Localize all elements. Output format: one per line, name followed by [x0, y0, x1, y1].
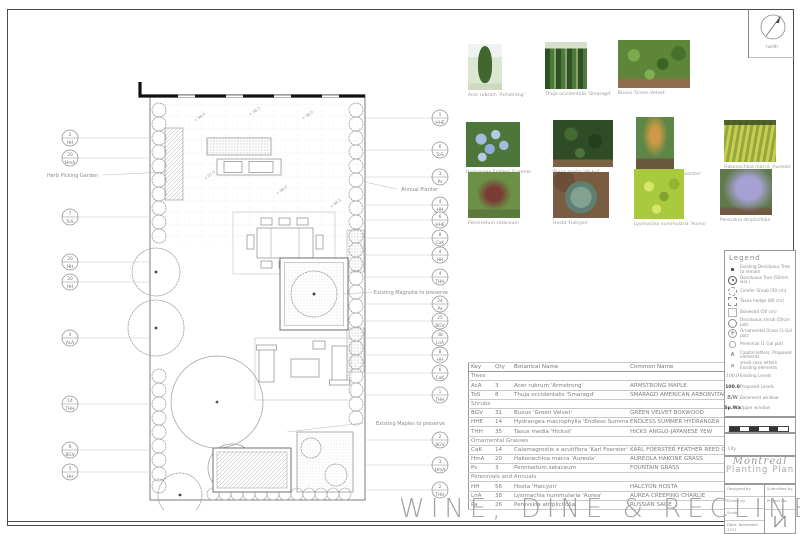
keynote-right: 4HH: [365, 197, 448, 213]
herb-garden-bed: [165, 128, 183, 200]
svg-text:HH: HH: [67, 140, 73, 146]
svg-text:3: 3: [439, 459, 442, 465]
svg-text:ToS: ToS: [435, 152, 444, 158]
taxus-hedge-icon: [728, 297, 737, 306]
legend-item: ACapital letters: Proposed elements: [728, 351, 793, 360]
svg-text:Ps: Ps: [438, 179, 444, 185]
magnolia-planter: [280, 258, 348, 330]
lowercase-letter-symbol: a: [728, 362, 737, 371]
scale-bar: [729, 426, 789, 432]
table-row: HH56Hosta 'Halcyon'HALCYON HOSTA: [469, 482, 725, 491]
legend-item: Boxwood (50 cm): [728, 308, 793, 317]
annual-planter-bed: [213, 448, 291, 492]
plant-photo-image: [553, 120, 613, 167]
right-bed-lower: [347, 328, 364, 372]
scale-cell: Scale: [724, 417, 796, 433]
plant-photo-image: [634, 169, 684, 219]
legend-item: B/WBasement window: [728, 393, 793, 402]
table-header-row: Key Qty Botanical Name Common Name: [469, 363, 725, 372]
plant-photo: Hakonechloa macra 'Aureola': [724, 120, 776, 170]
north-arrow-cell: north: [748, 9, 795, 58]
svg-text:AcA: AcA: [66, 340, 74, 346]
keynote-left: 20HmA: [62, 150, 150, 166]
basement-window-symbol: B/W: [728, 393, 737, 402]
plant-photo: Lysimachia nummularia 'Aurea': [634, 169, 684, 227]
legend-item: Deciduous Tree (50mm w.b.): [728, 276, 793, 285]
keynote-right: 1HHE: [365, 110, 448, 126]
svg-text:LnA: LnA: [436, 340, 444, 346]
right-bed-upper: [347, 230, 364, 272]
legend-title: Legend: [729, 254, 793, 262]
title-block-column: Legend Existing Deciduous Tree to remain…: [724, 250, 796, 534]
svg-text:6: 6: [69, 444, 72, 450]
plant-photo-image: [468, 172, 520, 218]
upper-window-symbol: Sp.Wa: [728, 404, 737, 413]
table-row: ToS8Thuja occidentalis 'Smaragd'SMARAGD …: [469, 390, 725, 399]
svg-text:HHE: HHE: [435, 222, 444, 228]
photo-caption: Acer rubrum 'Armstrong': [468, 93, 502, 98]
keynote-left: 2HH: [62, 130, 150, 146]
section-row: Shrubs: [469, 399, 725, 408]
svg-text:4: 4: [439, 199, 442, 205]
keynote-right: 8HH: [365, 347, 448, 363]
svg-text:24: 24: [437, 298, 443, 304]
boxwood-icon: [728, 308, 737, 317]
section-row: Trees: [469, 372, 725, 381]
legend-item: Conifer Shrub (50 cm): [728, 287, 793, 296]
perennial-icon: [729, 341, 736, 348]
photo-caption: Perovskia atriplicifolia: [720, 218, 772, 223]
deciduous-tree-icon: [728, 276, 737, 285]
keynote-left: 20HH: [62, 274, 150, 290]
keynote-right: 2BGV: [365, 432, 448, 448]
plant-photo-image: [468, 44, 502, 90]
keynote-right: 4THH: [365, 269, 448, 285]
table-row: BGV31Buxus 'Green Velvet'GREEN VELVET BO…: [469, 408, 725, 417]
svg-text:HH: HH: [67, 474, 73, 480]
svg-text:ToS: ToS: [65, 219, 74, 225]
magnolia-label: Existing Magnolia to preserve: [374, 290, 448, 296]
table-row: HmA20Hakonechloa macra 'Aureola'AUREOLA …: [469, 454, 725, 463]
svg-text:6: 6: [439, 144, 442, 150]
annual-planter-label: Annual Planter: [401, 187, 439, 193]
plant-photo-image: [720, 169, 772, 215]
svg-text:20: 20: [67, 276, 73, 282]
keynote-left: 20HH: [62, 254, 150, 270]
svg-text:HmA: HmA: [435, 467, 445, 473]
svg-text:3: 3: [439, 171, 442, 177]
photo-caption: Pennisetum setaceum: [468, 221, 520, 226]
city-cell: City Montreal: [724, 433, 796, 456]
svg-text:7: 7: [69, 211, 72, 217]
photo-caption: Hosta 'Halcyon': [553, 221, 609, 226]
svg-text:20: 20: [67, 256, 73, 262]
existing-tree-dot-icon: [728, 265, 737, 274]
photo-caption: Thuja occidentalis 'Smaragd': [545, 92, 587, 97]
svg-text:CaK: CaK: [436, 240, 445, 246]
keynote-left: 14THH: [62, 396, 150, 412]
table-row: CaK14Calamagrostis x acutiflora 'Karl Fo…: [469, 445, 725, 454]
conifer-shrub-icon: [728, 287, 737, 296]
north-label: north: [749, 45, 795, 50]
drawing-sheet: north .co circle{fill:#fff;stroke:#8c8c8…: [0, 0, 800, 533]
corner-bed: [297, 432, 353, 492]
keynote-left: 7ToS: [62, 209, 150, 225]
svg-text:8: 8: [439, 232, 442, 238]
plant-photo: Acer rubrum 'Armstrong': [468, 44, 502, 98]
svg-text:HmA: HmA: [65, 160, 75, 166]
plant-photo-image: [636, 117, 674, 169]
section-row: Ornamental Grasses: [469, 436, 725, 445]
svg-text:14: 14: [67, 398, 73, 404]
legend-item: asmall case letters: Existing elements: [728, 361, 793, 370]
svg-text:CaK: CaK: [436, 375, 445, 381]
svg-text:25: 25: [437, 315, 443, 321]
svg-text:2: 2: [439, 434, 442, 440]
keynote-right: 6HHE: [365, 212, 448, 228]
svg-text:8: 8: [439, 349, 442, 355]
svg-text:38: 38: [437, 332, 443, 338]
legend-item: Existing Deciduous Tree to remain: [728, 265, 793, 274]
keynote-right: 24Pa: [365, 296, 448, 312]
photo-caption: Lysimachia nummularia 'Aurea': [634, 222, 684, 227]
maples-label: Existing Maples to preserve: [376, 421, 445, 427]
plant-photo: Hydrangea Endless Summer: [466, 122, 520, 175]
svg-text:BGV: BGV: [435, 442, 444, 448]
keynote-right: 6ToS: [365, 142, 448, 158]
photo-caption: Buxus 'Green Velvet': [618, 91, 690, 96]
plant-photo: Perovskia atriplicifolia: [720, 169, 772, 223]
keynote-right: 1THH: [365, 387, 448, 403]
svg-text:THH: THH: [64, 406, 74, 412]
keynote-right: 25BGV: [365, 313, 448, 329]
plant-photo: Taxus media 'Hicksii': [553, 120, 613, 175]
legend-item: 100.0Proposed Levels: [728, 383, 793, 392]
plant-photo: Thuja occidentalis 'Smaragd': [545, 42, 587, 97]
keynote-right: 4HH: [365, 247, 448, 263]
plant-photo: Buxus 'Green Velvet': [618, 40, 690, 96]
table-row: THH35Taxus media 'Hicksii'HICKS ANGLO-JA…: [469, 427, 725, 436]
svg-text:HH: HH: [67, 284, 73, 290]
table-row: AcA3Acer rubrum 'Armstrong'ARMSTRONG MAP…: [469, 381, 725, 390]
section-row: Perennials and Annuals: [469, 473, 725, 482]
legend-item: ✳Ornamental Grass (1 Gal pot): [728, 329, 793, 338]
site-plan: .co circle{fill:#fff;stroke:#8c8c8c;stro…: [45, 80, 465, 510]
plant-photo-image: [724, 120, 776, 162]
table-row: HHE14Hydrangea macrophylla 'Endless Summ…: [469, 418, 725, 427]
svg-text:THH: THH: [434, 397, 444, 403]
keynote-right: 3Ps: [365, 169, 448, 185]
north-arrow-icon: [749, 9, 795, 45]
keynote-left: 5HH: [62, 464, 150, 480]
svg-text:5: 5: [69, 466, 72, 472]
svg-text:HHE: HHE: [435, 120, 444, 126]
svg-text:HH: HH: [437, 257, 443, 263]
keynote-left: 4AcA: [62, 330, 150, 346]
legend-item: Deciduous shrub (50cm pot): [728, 318, 793, 327]
svg-text:2: 2: [69, 132, 72, 138]
plant-photo-image: [545, 42, 587, 89]
capital-letter-symbol: A: [728, 351, 737, 360]
svg-text:1: 1: [439, 112, 442, 118]
plant-photo: Pennisetum setaceum: [468, 172, 520, 226]
svg-text:1: 1: [439, 389, 442, 395]
plant-photo-image: [618, 40, 690, 88]
svg-text:4: 4: [439, 249, 442, 255]
legend-panel: Legend Existing Deciduous Tree to remain…: [724, 250, 796, 417]
keynote-right: 6CaK: [365, 365, 448, 381]
svg-text:Pa: Pa: [437, 306, 442, 312]
plant-photo: Hosta 'Halcyon': [553, 172, 609, 226]
svg-text:HH: HH: [67, 264, 73, 270]
table-row: Ps3Pennisetum setaceumFOUNTAIN GRASS: [469, 464, 725, 473]
sheet-title: WINE, DINE & RECLINE: [399, 494, 800, 524]
legend-item: Sp.WaUpper window: [728, 404, 793, 413]
deciduous-shrub-icon: [728, 319, 737, 328]
keynote-right: 8CaK: [365, 230, 448, 246]
ornamental-grass-icon: ✳: [728, 329, 737, 338]
keynote-left: 6BGV: [62, 442, 150, 458]
proposed-level-symbol: 100.0: [728, 383, 737, 392]
svg-text:6: 6: [439, 367, 442, 373]
svg-text:BGV: BGV: [435, 323, 444, 329]
legend-item: Taxus hedge (80 cm): [728, 297, 793, 306]
legend-item: Perennial (1 Gal pot): [728, 340, 793, 349]
plant-photo-image: [553, 172, 609, 218]
plant-photo-image: [466, 122, 520, 167]
existing-level-symbol: 100.0: [728, 372, 737, 381]
plant-photo: Calamagrostis 'Karl Foerster': [636, 117, 674, 177]
svg-text:4: 4: [69, 332, 72, 338]
svg-text:4: 4: [439, 271, 442, 277]
svg-text:20: 20: [67, 152, 73, 158]
legend-item: 100.0Existing Levels: [728, 372, 793, 381]
svg-text:2: 2: [439, 484, 442, 490]
svg-text:HH: HH: [437, 357, 443, 363]
svg-text:6: 6: [439, 214, 442, 220]
svg-text:THH: THH: [434, 279, 444, 285]
keynote-right: 3HmA: [365, 457, 448, 473]
city-label: City: [728, 446, 736, 451]
plant-schedule-table: Key Qty Botanical Name Common Name Trees…: [468, 362, 725, 510]
lounge-area: [255, 338, 351, 400]
svg-text:BGV: BGV: [65, 452, 74, 458]
keynote-right: 38LnA: [365, 330, 448, 346]
herb-garden-label: Herb Picking Garden: [47, 173, 98, 179]
